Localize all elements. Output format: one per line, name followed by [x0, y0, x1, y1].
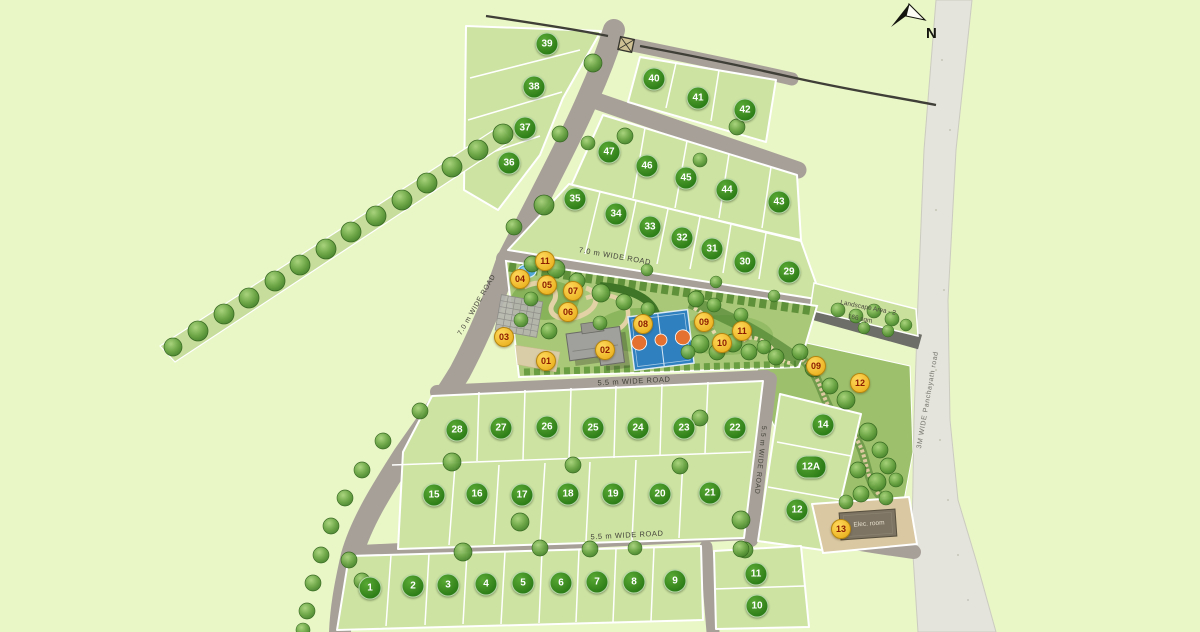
plot-marker-2[interactable]: 2 — [402, 575, 425, 598]
plot-marker-37[interactable]: 37 — [514, 117, 537, 140]
amenity-marker-11[interactable]: 11 — [535, 251, 555, 271]
plot-marker-10[interactable]: 10 — [746, 595, 769, 618]
plot-marker-39[interactable]: 39 — [536, 33, 559, 56]
amenity-marker-09[interactable]: 09 — [806, 356, 826, 376]
plot-marker-6[interactable]: 6 — [550, 572, 573, 595]
plot-marker-34[interactable]: 34 — [605, 203, 628, 226]
amenity-marker-12[interactable]: 12 — [850, 373, 870, 393]
plot-marker-41[interactable]: 41 — [687, 87, 710, 110]
plot-marker-28[interactable]: 28 — [446, 419, 469, 442]
plot-marker-24[interactable]: 24 — [627, 417, 650, 440]
plot-marker-17[interactable]: 17 — [511, 484, 534, 507]
plot-marker-42[interactable]: 42 — [734, 99, 757, 122]
plot-marker-8[interactable]: 8 — [623, 571, 646, 594]
plot-marker-21[interactable]: 21 — [699, 482, 722, 505]
plot-marker-9[interactable]: 9 — [664, 570, 687, 593]
plot-marker-1[interactable]: 1 — [359, 577, 382, 600]
plot-marker-7[interactable]: 7 — [586, 571, 609, 594]
amenity-marker-07[interactable]: 07 — [563, 281, 583, 301]
plot-marker-31[interactable]: 31 — [701, 238, 724, 261]
north-label: N — [926, 25, 937, 42]
plot-marker-38[interactable]: 38 — [523, 76, 546, 99]
plot-marker-46[interactable]: 46 — [636, 155, 659, 178]
amenity-marker-04[interactable]: 04 — [510, 269, 530, 289]
plot-marker-22[interactable]: 22 — [724, 417, 747, 440]
plot-marker-23[interactable]: 23 — [673, 417, 696, 440]
site-plan-map: N 39383736404142474645444335343332313029… — [0, 0, 1200, 632]
plot-marker-25[interactable]: 25 — [582, 417, 605, 440]
plot-marker-16[interactable]: 16 — [466, 483, 489, 506]
plot-marker-19[interactable]: 19 — [602, 483, 625, 506]
amenity-marker-11[interactable]: 11 — [732, 321, 752, 341]
plot-marker-44[interactable]: 44 — [716, 179, 739, 202]
plot-marker-11[interactable]: 11 — [745, 563, 768, 586]
plot-marker-33[interactable]: 33 — [639, 216, 662, 239]
plot-marker-18[interactable]: 18 — [557, 483, 580, 506]
plot-marker-30[interactable]: 30 — [734, 251, 757, 274]
plot-marker-26[interactable]: 26 — [536, 416, 559, 439]
plot-marker-5[interactable]: 5 — [512, 572, 535, 595]
plot-marker-45[interactable]: 45 — [675, 167, 698, 190]
plot-marker-36[interactable]: 36 — [498, 152, 521, 175]
plot-marker-4[interactable]: 4 — [475, 573, 498, 596]
plot-marker-3[interactable]: 3 — [437, 574, 460, 597]
amenity-marker-03[interactable]: 03 — [494, 327, 514, 347]
plot-marker-12[interactable]: 12 — [786, 499, 809, 522]
plot-marker-32[interactable]: 32 — [671, 227, 694, 250]
plot-marker-35[interactable]: 35 — [564, 188, 587, 211]
amenity-marker-10[interactable]: 10 — [712, 333, 732, 353]
amenity-marker-01[interactable]: 01 — [536, 351, 556, 371]
amenity-marker-06[interactable]: 06 — [558, 302, 578, 322]
plot-marker-12A[interactable]: 12A — [796, 456, 827, 479]
plot-marker-43[interactable]: 43 — [768, 191, 791, 214]
plot-marker-29[interactable]: 29 — [778, 261, 801, 284]
amenity-marker-02[interactable]: 02 — [595, 340, 615, 360]
plot-marker-47[interactable]: 47 — [598, 141, 621, 164]
amenity-marker-08[interactable]: 08 — [633, 314, 653, 334]
amenity-marker-13[interactable]: 13 — [831, 519, 851, 539]
plot-marker-40[interactable]: 40 — [643, 68, 666, 91]
plot-marker-27[interactable]: 27 — [490, 417, 513, 440]
amenity-marker-09[interactable]: 09 — [694, 312, 714, 332]
plot-marker-20[interactable]: 20 — [649, 483, 672, 506]
plot-marker-15[interactable]: 15 — [423, 484, 446, 507]
plot-marker-14[interactable]: 14 — [812, 414, 835, 437]
amenity-marker-05[interactable]: 05 — [537, 275, 557, 295]
entrance-gate-icon — [618, 37, 634, 53]
